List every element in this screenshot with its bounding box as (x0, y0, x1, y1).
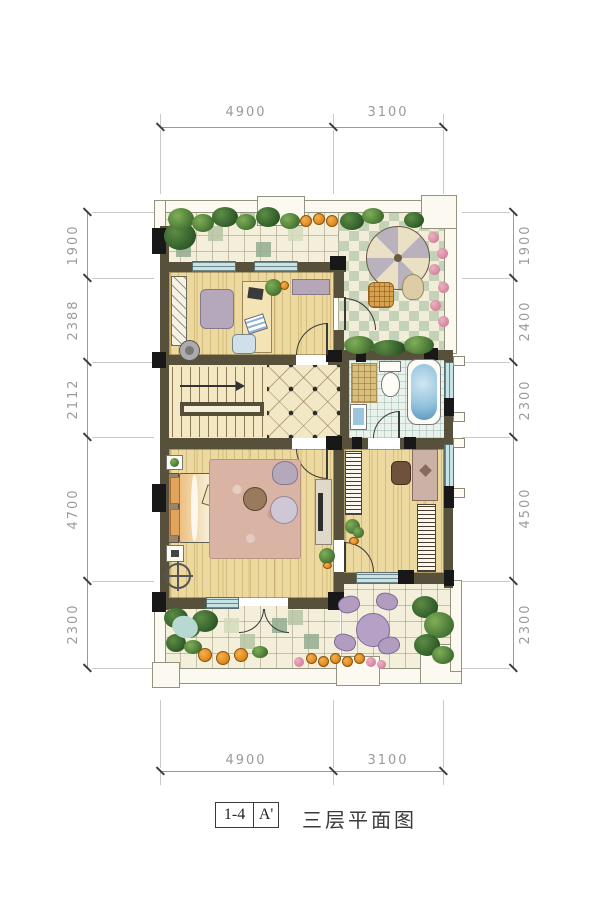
nightstand-lamp (171, 550, 179, 557)
dim-label-left-5: 2300 (67, 592, 81, 656)
study-door-leaf (326, 323, 328, 355)
dim-ext (160, 772, 161, 785)
wall-bedroom-closet-a (334, 449, 344, 540)
flower-icon (330, 653, 341, 664)
study-window-2 (254, 261, 298, 272)
wall-mid-a (160, 438, 292, 449)
dim-line-left (87, 212, 88, 668)
dim-label-bottom-2: 3100 (348, 754, 428, 768)
wall-study-north (160, 262, 346, 272)
flower-icon (318, 656, 329, 667)
study-cabinet (292, 279, 330, 295)
flower-icon (377, 660, 386, 669)
dim-ext (462, 278, 510, 279)
dim-label-left-3: 2112 (67, 367, 81, 431)
flower-icon (428, 232, 439, 243)
dim-ext (462, 437, 510, 438)
dim-ext (92, 278, 154, 279)
column (326, 350, 342, 362)
column (444, 398, 454, 416)
study-plant-pot (280, 281, 289, 290)
hall-floor (267, 365, 340, 438)
terrace-bush-icon (192, 214, 214, 232)
compass-line (163, 575, 193, 577)
column (444, 486, 454, 508)
study-bookshelf (171, 276, 187, 346)
window-frame (453, 356, 465, 366)
dim-label-right-3: 2300 (519, 368, 533, 432)
orange-shrub-icon (326, 215, 338, 227)
bedroom-door-leaf (326, 449, 328, 479)
toilet-tank (379, 361, 401, 372)
terrace-bush-icon (236, 214, 256, 230)
terrace-bush-icon (168, 208, 194, 230)
wicker-chair-icon (368, 282, 394, 308)
flower-icon (437, 248, 448, 259)
terrace-bush-icon (404, 212, 424, 228)
terrace-door-leaf (344, 297, 346, 330)
column (330, 256, 346, 270)
closet-door-leaf (344, 542, 346, 572)
flower-icon (306, 653, 317, 664)
title-block: 1-4 A' (215, 802, 279, 828)
dim-ext (462, 212, 510, 213)
column (152, 592, 166, 612)
column (326, 436, 342, 450)
plan-title: 三层平面图 (302, 804, 417, 833)
parapet-bottom (154, 668, 462, 684)
flower-icon (342, 656, 353, 667)
stair-direction-line (180, 385, 236, 387)
garden-sprig-icon (252, 646, 268, 658)
bathtub-water (411, 364, 437, 420)
terrace-bush-icon (340, 212, 364, 230)
bedroom-armchair (272, 461, 298, 485)
wardrobe-left (345, 451, 362, 515)
column (444, 570, 454, 586)
study-window-1 (192, 261, 236, 272)
dim-ext (333, 700, 334, 768)
parapet-top (156, 200, 456, 213)
orange-shrub-icon (300, 215, 312, 227)
stair-arrow-icon (236, 381, 245, 391)
dim-ext (333, 130, 334, 194)
parapet-post-bottom-left (152, 662, 180, 688)
tile-accent (288, 610, 303, 625)
dim-line-bottom (160, 771, 443, 772)
closet-south-window (356, 572, 402, 584)
hedge-icon (404, 336, 434, 354)
title-section: A' (254, 803, 278, 827)
bed-pillow (170, 477, 180, 504)
dim-label-top-2: 3100 (348, 106, 428, 120)
window-frame (453, 438, 465, 448)
bed-pillow (170, 509, 180, 536)
column (152, 352, 166, 368)
column (404, 437, 416, 449)
orange-shrub-icon (198, 648, 212, 662)
dim-ext (160, 700, 161, 768)
column (398, 570, 414, 584)
cactus-pot (349, 537, 359, 545)
tile-accent (304, 634, 319, 649)
dim-label-left-1: 1900 (67, 213, 81, 277)
dim-label-right-1: 1900 (519, 213, 533, 277)
dim-ext (443, 772, 444, 785)
wall-hall-bath (340, 360, 349, 440)
flower-icon (294, 657, 304, 667)
hedge-icon (344, 336, 374, 354)
flower-icon (354, 653, 365, 664)
dim-label-left-4: 4700 (67, 477, 81, 541)
stair-rail-inner (184, 406, 260, 412)
dim-label-right-5: 2300 (519, 592, 533, 656)
dim-line-right (513, 212, 514, 668)
dim-ext (462, 362, 510, 363)
bedroom-pouf (270, 496, 298, 524)
terrace-bush-icon (280, 213, 300, 229)
bathroom-door-leaf (398, 411, 400, 438)
bell-chair-icon (402, 274, 424, 300)
title-index: 1-4 (216, 803, 254, 827)
dim-label-right-4: 4500 (519, 476, 533, 540)
tile-accent (240, 634, 255, 649)
flower-icon (430, 300, 441, 311)
corner-bush-icon (432, 646, 454, 664)
bedroom-plant-pot (323, 562, 332, 569)
closet-chair (391, 461, 411, 485)
bedroom-side-table (243, 487, 267, 511)
tile-accent (224, 618, 239, 633)
terrace-bush-icon (362, 208, 384, 224)
dim-label-left-2: 2388 (67, 288, 81, 352)
wardrobe-right (417, 504, 436, 572)
bath-sink-basin (353, 408, 364, 425)
laptop (247, 287, 263, 300)
dim-ext (333, 772, 334, 785)
flower-icon (366, 657, 376, 667)
column (152, 484, 166, 512)
orange-shrub-icon (313, 213, 325, 225)
dim-ext (443, 130, 444, 194)
parapet-post-top-right (421, 195, 457, 229)
dim-ext (92, 362, 154, 363)
flower-icon (438, 316, 449, 327)
dim-label-top-1: 4900 (206, 106, 286, 120)
bed-duvet-fold (191, 475, 198, 541)
dim-ext (92, 668, 154, 669)
dim-ext (160, 130, 161, 194)
wall-closet-south-a (334, 573, 356, 584)
floor-plan-page: 4900 3100 4900 3100 1900 2388 2112 4700 … (0, 0, 600, 900)
closet-east-window (444, 444, 454, 490)
dim-ext (92, 581, 154, 582)
dim-ext (92, 437, 154, 438)
dim-label-bottom-1: 4900 (206, 754, 286, 768)
study-stool-center (185, 346, 194, 355)
hedge-icon (372, 340, 406, 356)
study-plant-icon (265, 279, 282, 296)
flower-icon (438, 282, 449, 293)
nightstand-plant-icon (170, 458, 179, 467)
column (352, 437, 362, 449)
dim-ext (462, 668, 510, 669)
terrace-bush-icon (256, 207, 280, 227)
orange-shrub-icon (234, 648, 248, 662)
dim-line-top (160, 127, 443, 128)
tile-accent (256, 242, 271, 257)
bath-mat (351, 363, 377, 403)
dim-ext (92, 212, 154, 213)
terrace-bush-icon (212, 207, 238, 227)
dim-ext (462, 581, 510, 582)
flower-icon (429, 264, 440, 275)
window-frame (453, 488, 465, 498)
dim-label-right-2: 2400 (519, 289, 533, 353)
parasol-center (394, 254, 402, 262)
orange-shrub-icon (216, 651, 230, 665)
study-armchair (200, 289, 234, 329)
window-frame (453, 412, 465, 422)
dim-ext (443, 700, 444, 768)
toilet-bowl (381, 372, 400, 397)
desk-chair (232, 334, 256, 354)
bedroom-window (206, 597, 239, 609)
tv-icon (318, 493, 323, 531)
